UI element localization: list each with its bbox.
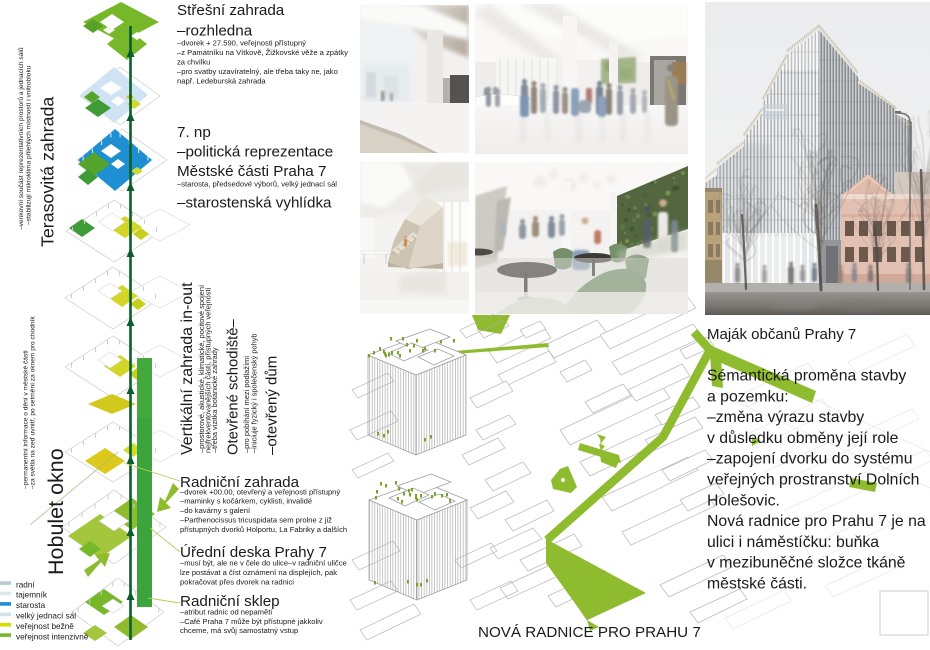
svg-text:–iniciuje fyzický i společensk: –iniciuje fyzický i společenský pohyb [250, 333, 259, 453]
svg-text:přístupných dvorků Holportu, L: přístupných dvorků Holportu, La Fabriky … [180, 525, 347, 534]
svg-text:městské části.: městské části. [707, 576, 807, 593]
svg-text:v důsledku obměny její role: v důsledku obměny její role [707, 429, 899, 447]
svg-text:–zapojení dvorku do systému: –zapojení dvorku do systému [707, 451, 912, 468]
svg-text:–pro svatby uzavíratelný, ale: –pro svatby uzavíratelný, ale třeba taky… [177, 67, 338, 76]
svg-text:a pozemku:: a pozemku: [707, 388, 789, 405]
svg-text:–permanentní informace o dění: –permanentní informace o dění v městské … [23, 350, 30, 489]
svg-text:–musí být, ale ne v čele do ul: –musí být, ale ne v čele do ulice–v radn… [180, 559, 347, 568]
svg-text:v mezibuněčné složce tkáně: v mezibuněčné složce tkáně [707, 555, 906, 572]
svg-text:–rozhledna: –rozhledna [177, 23, 253, 40]
svg-text:7. np: 7. np [177, 124, 211, 141]
svg-text:radní: radní [16, 580, 35, 589]
svg-text:veřejnost intenzivně: veřejnost intenzivně [16, 632, 89, 641]
svg-text:–do kavárny s galerií: –do kavárny s galerií [180, 506, 251, 515]
svg-text:Sémantická proměna stavby: Sémantická proměna stavby [707, 368, 906, 385]
svg-text:veřejných prostranství Dolních: veřejných prostranství Dolních [707, 472, 919, 489]
svg-text:–Café Praha 7 může být přístup: –Café Praha 7 může být přístupné jakkoli… [180, 617, 323, 626]
svg-text:pokračovat přes dvorek na radn: pokračovat přes dvorek na radnici [180, 577, 294, 586]
svg-text:starosta: starosta [16, 601, 46, 610]
svg-text:–venkovní součást reprezentati: –venkovní součást reprezentativních pros… [17, 47, 25, 230]
svg-text:–Parthenocissus tricuspidata s: –Parthenocissus tricuspidata sem prolne … [180, 516, 332, 525]
svg-text:za chvilku: za chvilku [177, 58, 210, 67]
svg-text:–atribut radnic od nepaměti: –atribut radnic od nepaměti [180, 607, 272, 616]
svg-text:–politická reprezentace: –politická reprezentace [177, 144, 333, 161]
svg-text:Městské části Praha 7: Městské části Praha 7 [177, 163, 326, 180]
svg-text:Maják občanů Prahy 7: Maják občanů Prahy 7 [707, 326, 856, 343]
svg-text:lze postávat a číst oznámení n: lze postávat a číst oznámení na displejí… [180, 568, 337, 577]
svg-text:–maminky s kočárkem, cyklisti,: –maminky s kočárkem, cyklisti, invalidé [180, 497, 312, 506]
svg-text:NOVÁ RADNICE PRO PRAHU 7: NOVÁ RADNICE PRO PRAHU 7 [478, 624, 701, 641]
svg-text:–z Památníku na Vítkově, Žižko: –z Památníku na Vítkově, Žižkovské věže … [177, 48, 348, 57]
svg-text:ulici i náměstíčku: buňka: ulici i náměstíčku: buňka [707, 534, 879, 551]
svg-text:Hobulet okno: Hobulet okno [44, 448, 68, 575]
svg-text:–starosta, předsedové výborů,: –starosta, předsedové výborů, velký jedn… [177, 180, 337, 189]
svg-text:–třeba vizitka botanické zahra: –třeba vizitka botanické zahrady [210, 347, 219, 453]
svg-text:–starostenská vyhlídka: –starostenská vyhlídka [177, 195, 332, 212]
svg-text:Nová radnice pro Prahu 7 je na: Nová radnice pro Prahu 7 je na [707, 513, 926, 530]
svg-text:–otevřený dům: –otevřený dům [264, 356, 281, 455]
svg-text:–dvorek + 27.590, veřejnosti p: –dvorek + 27.590, veřejnosti přístupný [177, 39, 306, 48]
svg-text:–dvorek +00.00, otevřený a veř: –dvorek +00.00, otevřený a veřejnosti př… [180, 487, 340, 496]
svg-text:Otevřené schodiště–: Otevřené schodiště– [226, 319, 242, 455]
svg-text:–stabilizují mikroklima přileh: –stabilizují mikroklima přilehlých místn… [26, 65, 33, 225]
svg-text:Terasovitá zahrada: Terasovitá zahrada [38, 97, 58, 247]
svg-text:chceme, má svůj samostatný vst: chceme, má svůj samostatný vstup [180, 626, 298, 635]
svg-text:Střešní zahrada: Střešní zahrada [177, 2, 285, 19]
svg-text:–za světla na zeď uvnitř, po s: –za světla na zeď uvnitř, po setmění za … [30, 316, 37, 489]
svg-text:velký jednací sál: velký jednací sál [16, 612, 76, 621]
svg-text:Vertikální zahrada in-out: Vertikální zahrada in-out [179, 282, 196, 455]
svg-text:např. Ledeburská zahrada: např. Ledeburská zahrada [177, 77, 266, 86]
svg-text:–změna výrazu stavby: –změna výrazu stavby [707, 409, 864, 426]
svg-text:tajemník: tajemník [16, 591, 48, 600]
svg-text:veřejnost bežně: veřejnost bežně [16, 622, 74, 631]
svg-text:Holešovic.: Holešovic. [707, 492, 780, 509]
